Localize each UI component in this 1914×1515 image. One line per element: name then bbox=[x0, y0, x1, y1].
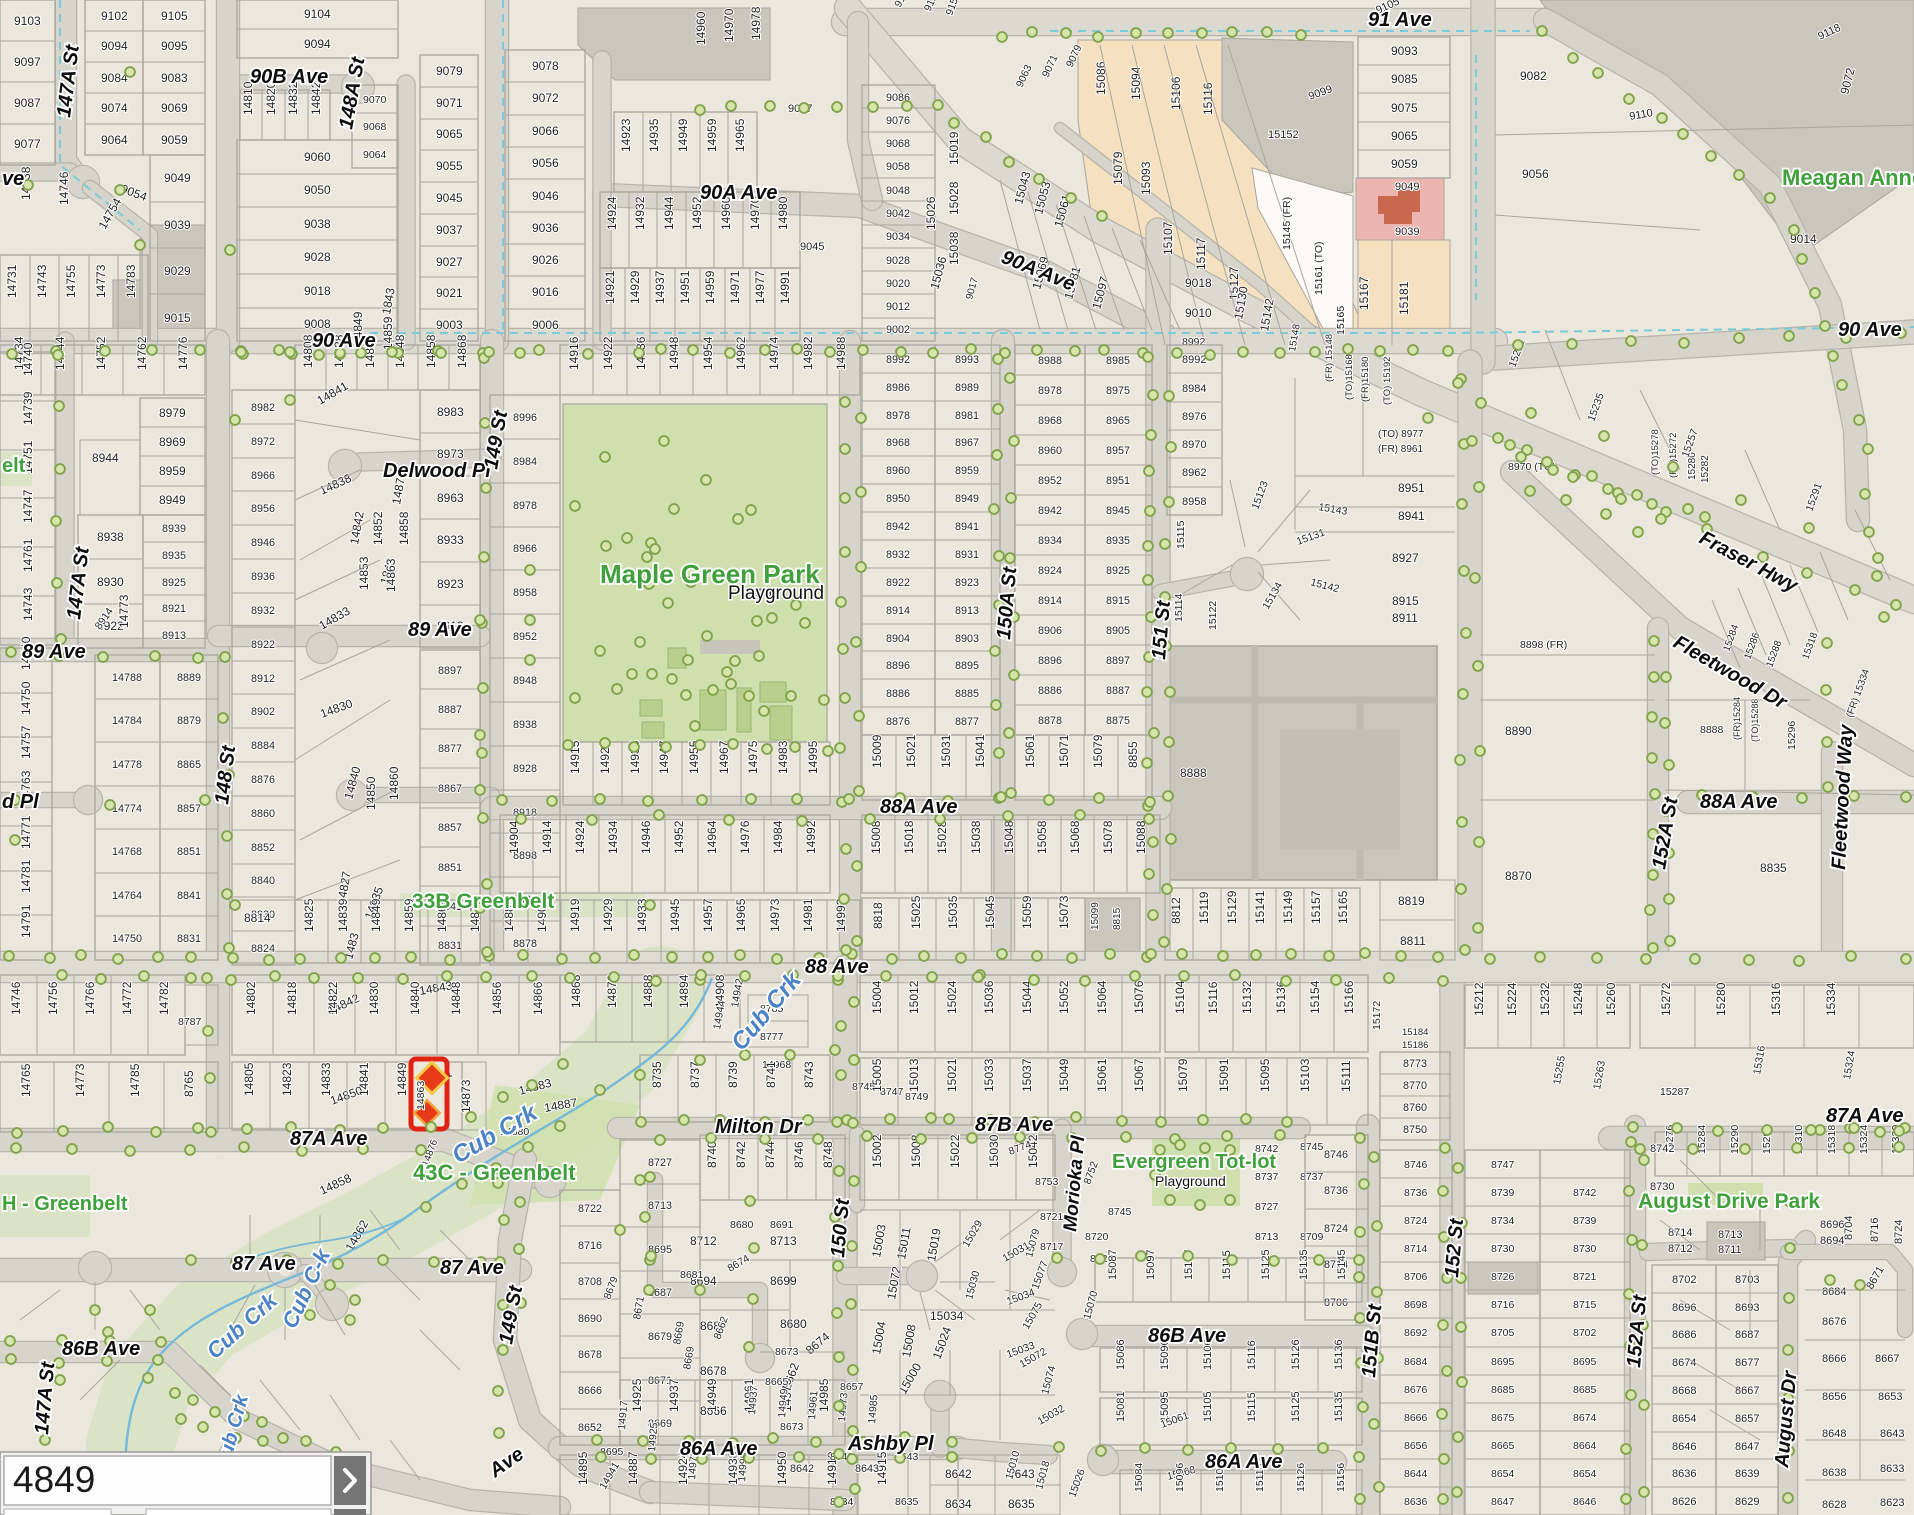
svg-text:8877: 8877 bbox=[955, 716, 979, 728]
svg-text:8928: 8928 bbox=[513, 763, 537, 775]
svg-text:15165: 15165 bbox=[1336, 890, 1350, 924]
svg-text:8709: 8709 bbox=[1300, 1231, 1324, 1243]
svg-text:8914: 8914 bbox=[1038, 595, 1062, 607]
svg-text:14895: 14895 bbox=[576, 1451, 590, 1485]
svg-text:15028: 15028 bbox=[947, 181, 961, 215]
svg-text:8653: 8653 bbox=[1878, 1391, 1902, 1403]
svg-text:8915: 8915 bbox=[1392, 594, 1419, 608]
svg-text:15012: 15012 bbox=[907, 980, 921, 1014]
svg-text:14778: 14778 bbox=[112, 759, 142, 771]
svg-text:14937: 14937 bbox=[746, 1385, 761, 1415]
svg-text:8898 (FR): 8898 (FR) bbox=[1520, 639, 1567, 651]
svg-text:15115: 15115 bbox=[1175, 520, 1187, 549]
svg-text:8703: 8703 bbox=[1735, 1274, 1759, 1286]
svg-text:8925: 8925 bbox=[1106, 565, 1130, 577]
svg-text:8739: 8739 bbox=[726, 1061, 740, 1088]
svg-text:15181: 15181 bbox=[1397, 281, 1411, 315]
svg-text:14762: 14762 bbox=[135, 336, 149, 370]
svg-text:8972: 8972 bbox=[251, 436, 275, 448]
svg-text:9028: 9028 bbox=[886, 255, 910, 267]
svg-text:8876: 8876 bbox=[251, 774, 275, 786]
svg-text:15079: 15079 bbox=[1091, 734, 1105, 768]
svg-text:15116: 15116 bbox=[1246, 1340, 1258, 1370]
svg-text:9018: 9018 bbox=[1185, 276, 1212, 290]
svg-text:14951: 14951 bbox=[678, 270, 692, 304]
svg-text:8665: 8665 bbox=[765, 1376, 789, 1388]
svg-text:9059: 9059 bbox=[1391, 157, 1418, 171]
svg-text:8851: 8851 bbox=[177, 846, 201, 858]
svg-text:8744: 8744 bbox=[763, 1141, 777, 1168]
svg-text:14747: 14747 bbox=[21, 489, 35, 523]
svg-text:8960: 8960 bbox=[886, 465, 910, 477]
svg-text:14957: 14957 bbox=[701, 898, 715, 932]
svg-text:14849: 14849 bbox=[369, 898, 383, 932]
svg-text:15071: 15071 bbox=[1057, 734, 1071, 768]
svg-text:15166: 15166 bbox=[1342, 980, 1356, 1014]
svg-text:8857: 8857 bbox=[177, 803, 201, 815]
svg-text:14746: 14746 bbox=[57, 171, 71, 205]
svg-text:14985: 14985 bbox=[866, 1394, 881, 1424]
svg-text:8642: 8642 bbox=[945, 1467, 972, 1481]
svg-text:8921: 8921 bbox=[162, 603, 186, 615]
svg-text:14852: 14852 bbox=[371, 511, 385, 545]
svg-text:15025: 15025 bbox=[909, 895, 923, 929]
svg-text:15019: 15019 bbox=[947, 131, 961, 165]
svg-text:9065: 9065 bbox=[436, 127, 463, 141]
svg-text:15105: 15105 bbox=[1202, 1391, 1214, 1422]
svg-text:14785: 14785 bbox=[128, 1063, 142, 1097]
svg-text:15115: 15115 bbox=[1246, 1392, 1258, 1422]
svg-text:14791: 14791 bbox=[19, 904, 33, 938]
svg-text:8890: 8890 bbox=[1505, 724, 1532, 738]
svg-text:14975: 14975 bbox=[746, 740, 760, 774]
svg-text:8936: 8936 bbox=[251, 571, 275, 583]
svg-text:8948: 8948 bbox=[513, 675, 537, 687]
svg-text:8692: 8692 bbox=[1404, 1327, 1428, 1339]
svg-text:8736: 8736 bbox=[1404, 1187, 1428, 1199]
svg-text:8680: 8680 bbox=[730, 1219, 754, 1231]
svg-text:15145: 15145 bbox=[1336, 1249, 1348, 1280]
svg-text:15038: 15038 bbox=[969, 820, 983, 854]
svg-text:15086: 15086 bbox=[1115, 1339, 1127, 1370]
svg-text:14924: 14924 bbox=[573, 820, 587, 854]
svg-text:8841: 8841 bbox=[177, 890, 201, 902]
svg-text:8656: 8656 bbox=[1404, 1440, 1428, 1452]
svg-text:15061: 15061 bbox=[1095, 1058, 1109, 1092]
svg-text:15135: 15135 bbox=[1298, 1249, 1310, 1280]
svg-text:9095: 9095 bbox=[161, 39, 188, 53]
svg-text:8740: 8740 bbox=[705, 1141, 719, 1168]
svg-text:86A Ave: 86A Ave bbox=[1205, 1451, 1282, 1473]
svg-text:8745: 8745 bbox=[1300, 1141, 1324, 1153]
svg-text:15106: 15106 bbox=[1169, 76, 1183, 110]
svg-text:14833: 14833 bbox=[319, 1062, 333, 1096]
svg-text:8927: 8927 bbox=[1392, 551, 1419, 565]
svg-text:15260: 15260 bbox=[1604, 982, 1618, 1016]
svg-text:14949: 14949 bbox=[705, 1378, 719, 1412]
svg-text:8711: 8711 bbox=[1718, 1244, 1742, 1256]
svg-text:15024: 15024 bbox=[945, 980, 959, 1014]
svg-text:8895: 8895 bbox=[955, 660, 979, 672]
svg-text:14750: 14750 bbox=[19, 681, 33, 715]
svg-text:15036: 15036 bbox=[982, 980, 996, 1014]
svg-text:8736: 8736 bbox=[1324, 1185, 1348, 1197]
svg-text:14830: 14830 bbox=[367, 981, 381, 1015]
svg-text:15018: 15018 bbox=[902, 820, 916, 854]
svg-text:8695: 8695 bbox=[1573, 1356, 1597, 1368]
svg-text:8742: 8742 bbox=[1650, 1143, 1674, 1155]
svg-text:14952: 14952 bbox=[672, 820, 686, 854]
svg-text:8922: 8922 bbox=[886, 577, 910, 589]
svg-text:8742: 8742 bbox=[734, 1141, 748, 1168]
svg-text:8634: 8634 bbox=[945, 1497, 972, 1511]
svg-text:15097: 15097 bbox=[1145, 1249, 1157, 1280]
svg-text:8951: 8951 bbox=[1398, 481, 1425, 495]
svg-text:8676: 8676 bbox=[1404, 1384, 1428, 1396]
svg-text:8642: 8642 bbox=[790, 1463, 814, 1475]
svg-text:9002: 9002 bbox=[886, 324, 910, 336]
svg-text:8840: 8840 bbox=[251, 875, 275, 887]
svg-text:8951: 8951 bbox=[1106, 475, 1130, 487]
svg-text:14923: 14923 bbox=[619, 118, 633, 152]
svg-text:14937: 14937 bbox=[653, 270, 667, 304]
svg-text:15126: 15126 bbox=[1295, 1463, 1307, 1492]
svg-text:8938: 8938 bbox=[513, 719, 537, 731]
svg-text:86A Ave: 86A Ave bbox=[680, 1438, 757, 1460]
svg-text:15009: 15009 bbox=[870, 734, 884, 768]
svg-text:elt: elt bbox=[2, 455, 26, 477]
svg-text:8739: 8739 bbox=[1491, 1187, 1515, 1199]
svg-text:15068: 15068 bbox=[1068, 820, 1082, 854]
svg-text:8721: 8721 bbox=[1573, 1271, 1597, 1283]
svg-text:15093: 15093 bbox=[1139, 161, 1153, 195]
svg-text:15280: 15280 bbox=[1714, 982, 1728, 1016]
svg-text:9079: 9079 bbox=[436, 64, 463, 78]
svg-text:8867: 8867 bbox=[438, 783, 462, 795]
svg-text:(TO) 15192: (TO) 15192 bbox=[1382, 357, 1393, 405]
svg-text:8979: 8979 bbox=[159, 406, 186, 420]
svg-text:8973: 8973 bbox=[437, 447, 464, 461]
svg-text:8932: 8932 bbox=[886, 549, 910, 561]
svg-text:15045: 15045 bbox=[983, 895, 997, 929]
svg-text:14950: 14950 bbox=[775, 1451, 789, 1485]
svg-text:14768: 14768 bbox=[112, 846, 142, 858]
svg-text:8933: 8933 bbox=[437, 533, 464, 547]
svg-text:14961: 14961 bbox=[806, 1390, 821, 1420]
svg-text:15022: 15022 bbox=[948, 1134, 962, 1168]
svg-text:15078: 15078 bbox=[1101, 820, 1115, 854]
svg-text:8636: 8636 bbox=[1404, 1496, 1428, 1508]
svg-text:15034: 15034 bbox=[930, 1309, 964, 1323]
svg-text:9082: 9082 bbox=[1520, 69, 1547, 83]
svg-text:8716: 8716 bbox=[1491, 1299, 1515, 1311]
svg-text:15005: 15005 bbox=[870, 1058, 884, 1092]
svg-text:15064: 15064 bbox=[1095, 980, 1109, 1014]
svg-text:15132: 15132 bbox=[1240, 980, 1254, 1014]
svg-text:15081: 15081 bbox=[1115, 1391, 1127, 1422]
svg-text:8713: 8713 bbox=[1718, 1229, 1742, 1241]
svg-text:8747: 8747 bbox=[1491, 1159, 1515, 1171]
svg-text:8713: 8713 bbox=[770, 1234, 797, 1248]
svg-text:14894: 14894 bbox=[677, 974, 691, 1008]
svg-text:87A Ave: 87A Ave bbox=[290, 1128, 367, 1150]
svg-text:9071: 9071 bbox=[436, 96, 463, 110]
svg-text:8724: 8724 bbox=[1404, 1215, 1428, 1227]
svg-text:8884: 8884 bbox=[251, 740, 275, 752]
svg-text:14984: 14984 bbox=[771, 820, 785, 854]
svg-text:14981: 14981 bbox=[801, 898, 815, 932]
svg-text:8667: 8667 bbox=[1735, 1385, 1759, 1397]
svg-text:8924: 8924 bbox=[1038, 565, 1062, 577]
svg-text:14948: 14948 bbox=[667, 336, 681, 370]
svg-text:14922: 14922 bbox=[601, 336, 615, 370]
svg-text:8963: 8963 bbox=[437, 491, 464, 505]
svg-text:8722: 8722 bbox=[578, 1203, 602, 1215]
svg-text:14746: 14746 bbox=[9, 981, 23, 1015]
svg-text:8698: 8698 bbox=[1404, 1299, 1428, 1311]
svg-text:15004: 15004 bbox=[870, 980, 884, 1014]
svg-text:15141: 15141 bbox=[1253, 890, 1267, 924]
svg-text:43C - Greenbelt: 43C - Greenbelt bbox=[413, 1160, 576, 1185]
svg-text:14856: 14856 bbox=[490, 981, 504, 1015]
svg-text:14802: 14802 bbox=[244, 981, 258, 1015]
svg-text:8730: 8730 bbox=[1491, 1243, 1515, 1255]
svg-text:8694: 8694 bbox=[1820, 1235, 1844, 1247]
svg-text:8913: 8913 bbox=[162, 630, 186, 642]
svg-text:15172: 15172 bbox=[1371, 1001, 1383, 1030]
svg-text:8902: 8902 bbox=[251, 706, 275, 718]
svg-text:15316: 15316 bbox=[1769, 982, 1783, 1016]
svg-text:8713: 8713 bbox=[648, 1200, 672, 1212]
svg-text:8666: 8666 bbox=[1822, 1353, 1846, 1365]
svg-text:9094: 9094 bbox=[101, 39, 128, 53]
svg-text:8773: 8773 bbox=[1403, 1058, 1427, 1070]
svg-text:9029: 9029 bbox=[164, 264, 191, 278]
svg-text:8684: 8684 bbox=[1822, 1286, 1846, 1298]
svg-text:8643: 8643 bbox=[855, 1463, 879, 1475]
svg-text:8962: 8962 bbox=[1182, 467, 1206, 479]
svg-text:14925: 14925 bbox=[646, 1422, 661, 1452]
svg-text:9046: 9046 bbox=[532, 189, 559, 203]
svg-text:87A Ave: 87A Ave bbox=[1826, 1105, 1903, 1127]
svg-text:15037: 15037 bbox=[1020, 1058, 1034, 1092]
svg-text:14971: 14971 bbox=[728, 270, 742, 304]
svg-text:9072: 9072 bbox=[532, 91, 559, 105]
svg-text:9064: 9064 bbox=[101, 133, 128, 147]
svg-text:8915: 8915 bbox=[1106, 595, 1130, 607]
svg-text:8986: 8986 bbox=[886, 382, 910, 394]
svg-text:90B Ave: 90B Ave bbox=[250, 66, 328, 88]
svg-text:ve: ve bbox=[2, 168, 24, 190]
svg-text:8992: 8992 bbox=[1182, 336, 1206, 348]
svg-text:8760: 8760 bbox=[1403, 1102, 1427, 1114]
svg-text:8742: 8742 bbox=[1573, 1187, 1597, 1199]
svg-text:8983: 8983 bbox=[437, 405, 464, 419]
svg-text:9087: 9087 bbox=[14, 96, 41, 110]
svg-text:14904: 14904 bbox=[507, 820, 521, 854]
svg-text:8818: 8818 bbox=[871, 902, 885, 929]
svg-text:15041: 15041 bbox=[973, 734, 987, 768]
svg-text:14773: 14773 bbox=[117, 594, 131, 628]
svg-text:8746: 8746 bbox=[1324, 1149, 1348, 1161]
svg-text:8730: 8730 bbox=[1573, 1243, 1597, 1255]
svg-text:8888: 8888 bbox=[1700, 724, 1724, 736]
svg-text:8976: 8976 bbox=[1182, 411, 1206, 423]
svg-text:14739: 14739 bbox=[21, 391, 35, 425]
svg-text:8674: 8674 bbox=[1672, 1357, 1696, 1369]
svg-text:8887: 8887 bbox=[1106, 685, 1130, 697]
svg-text:8690: 8690 bbox=[578, 1313, 602, 1325]
svg-text:9026: 9026 bbox=[532, 253, 559, 267]
svg-text:8959: 8959 bbox=[159, 464, 186, 478]
svg-text:8852: 8852 bbox=[251, 842, 275, 854]
svg-text:8912: 8912 bbox=[251, 673, 275, 685]
svg-text:14743: 14743 bbox=[21, 587, 35, 621]
svg-text:8860: 8860 bbox=[251, 808, 275, 820]
svg-text:H - Greenbelt: H - Greenbelt bbox=[2, 1193, 128, 1215]
svg-text:8712: 8712 bbox=[1668, 1243, 1692, 1255]
svg-text:15021: 15021 bbox=[904, 734, 918, 768]
svg-text:Delwood Pl: Delwood Pl bbox=[383, 460, 491, 482]
svg-text:14750: 14750 bbox=[112, 933, 142, 945]
svg-text:14773: 14773 bbox=[73, 1063, 87, 1097]
svg-text:8878: 8878 bbox=[513, 938, 537, 950]
svg-text:15061: 15061 bbox=[1023, 734, 1037, 768]
svg-text:15232: 15232 bbox=[1538, 982, 1552, 1016]
svg-text:8681: 8681 bbox=[680, 1269, 704, 1281]
svg-text:Meagan Anne: Meagan Anne bbox=[1782, 165, 1914, 190]
svg-text:14914: 14914 bbox=[540, 820, 554, 854]
svg-text:8949: 8949 bbox=[159, 493, 186, 507]
svg-text:8726: 8726 bbox=[1491, 1271, 1515, 1283]
svg-text:8903: 8903 bbox=[955, 633, 979, 645]
svg-text:14946: 14946 bbox=[639, 820, 653, 854]
svg-text:8693: 8693 bbox=[1735, 1302, 1759, 1314]
svg-text:15111: 15111 bbox=[1339, 1060, 1353, 1092]
svg-text:15165: 15165 bbox=[1335, 306, 1347, 335]
svg-text:9045: 9045 bbox=[436, 191, 463, 205]
svg-text:8647: 8647 bbox=[1735, 1441, 1759, 1453]
svg-text:8677: 8677 bbox=[1735, 1357, 1759, 1369]
svg-text:9028: 9028 bbox=[304, 250, 331, 264]
svg-text:14868: 14868 bbox=[455, 334, 469, 368]
svg-text:15318: 15318 bbox=[1826, 1125, 1838, 1154]
svg-text:8686: 8686 bbox=[1672, 1329, 1696, 1341]
svg-text:14929: 14929 bbox=[601, 898, 615, 932]
svg-text:14731: 14731 bbox=[5, 264, 19, 298]
svg-text:14973: 14973 bbox=[768, 898, 782, 932]
svg-text:8656: 8656 bbox=[1822, 1391, 1846, 1403]
svg-text:8765: 8765 bbox=[182, 1070, 196, 1097]
svg-text:14756: 14756 bbox=[46, 981, 60, 1015]
svg-text:8888: 8888 bbox=[1180, 766, 1207, 780]
svg-text:8931: 8931 bbox=[955, 549, 979, 561]
svg-text:14825: 14825 bbox=[302, 898, 316, 932]
svg-text:14860: 14860 bbox=[387, 766, 401, 800]
svg-text:8713: 8713 bbox=[1255, 1231, 1279, 1243]
svg-text:9037: 9037 bbox=[436, 223, 463, 237]
svg-text:8680: 8680 bbox=[780, 1317, 807, 1331]
svg-text:15184: 15184 bbox=[1402, 1027, 1428, 1038]
svg-text:9038: 9038 bbox=[304, 217, 331, 231]
svg-text:14859: 14859 bbox=[381, 316, 395, 350]
svg-text:4849: 4849 bbox=[13, 1459, 95, 1500]
svg-text:15021: 15021 bbox=[945, 1058, 959, 1092]
svg-text:8648: 8648 bbox=[1822, 1428, 1846, 1440]
svg-text:14970: 14970 bbox=[722, 8, 736, 42]
svg-text:8932: 8932 bbox=[251, 605, 275, 617]
svg-text:15129: 15129 bbox=[1225, 890, 1239, 924]
svg-text:14781: 14781 bbox=[19, 859, 33, 893]
svg-text:9021: 9021 bbox=[436, 286, 463, 300]
svg-text:8941: 8941 bbox=[955, 521, 979, 533]
svg-text:8941: 8941 bbox=[1398, 509, 1425, 523]
svg-text:15114: 15114 bbox=[1173, 593, 1185, 622]
svg-text:14771: 14771 bbox=[19, 815, 33, 849]
svg-text:15161 (TO): 15161 (TO) bbox=[1313, 242, 1325, 296]
svg-text:14932: 14932 bbox=[633, 196, 647, 230]
svg-text:August Drive Park: August Drive Park bbox=[1638, 1190, 1820, 1213]
svg-text:8875: 8875 bbox=[1106, 715, 1130, 727]
svg-text:8664: 8664 bbox=[1573, 1440, 1597, 1452]
svg-text:15167: 15167 bbox=[1357, 276, 1371, 310]
svg-text:8935: 8935 bbox=[1106, 535, 1130, 547]
svg-text:8975: 8975 bbox=[1106, 385, 1130, 397]
svg-text:8851: 8851 bbox=[438, 862, 462, 874]
svg-text:8679: 8679 bbox=[648, 1331, 672, 1343]
svg-text:8865: 8865 bbox=[177, 759, 201, 771]
svg-text:8957: 8957 bbox=[1106, 445, 1130, 457]
svg-text:8952: 8952 bbox=[513, 631, 537, 643]
svg-text:14743: 14743 bbox=[35, 264, 49, 298]
svg-text:8958: 8958 bbox=[513, 587, 537, 599]
svg-text:14965: 14965 bbox=[734, 898, 748, 932]
svg-text:8978: 8978 bbox=[886, 410, 910, 422]
svg-text:15145 (FR): 15145 (FR) bbox=[1281, 197, 1293, 250]
svg-text:90A Ave: 90A Ave bbox=[700, 182, 777, 204]
svg-text:14924: 14924 bbox=[605, 196, 619, 230]
svg-text:15334: 15334 bbox=[1824, 982, 1838, 1016]
svg-text:8753: 8753 bbox=[1035, 1176, 1059, 1188]
svg-text:8879: 8879 bbox=[177, 715, 201, 727]
svg-text:8629: 8629 bbox=[1735, 1496, 1759, 1508]
svg-text:9060: 9060 bbox=[304, 150, 331, 164]
svg-text:8741: 8741 bbox=[764, 1061, 778, 1088]
svg-text:8739: 8739 bbox=[1573, 1215, 1597, 1227]
svg-text:8654: 8654 bbox=[1573, 1468, 1597, 1480]
svg-text:15084: 15084 bbox=[1133, 1463, 1145, 1492]
svg-text:15088: 15088 bbox=[1134, 820, 1148, 854]
svg-text:15086: 15086 bbox=[1094, 61, 1108, 95]
svg-text:8674: 8674 bbox=[1573, 1412, 1597, 1424]
svg-text:15287: 15287 bbox=[1660, 1086, 1689, 1098]
svg-text:8623: 8623 bbox=[1880, 1497, 1904, 1509]
svg-text:8811: 8811 bbox=[1400, 934, 1426, 948]
svg-text:14772: 14772 bbox=[120, 981, 134, 1015]
svg-text:15008: 15008 bbox=[869, 820, 883, 854]
svg-text:14980: 14980 bbox=[776, 196, 790, 230]
svg-text:14818: 14818 bbox=[285, 981, 299, 1015]
svg-text:9048: 9048 bbox=[886, 185, 910, 197]
svg-text:8654: 8654 bbox=[1491, 1468, 1515, 1480]
svg-text:8985: 8985 bbox=[1106, 355, 1130, 367]
svg-text:15154: 15154 bbox=[1308, 980, 1322, 1014]
svg-text:14863: 14863 bbox=[384, 558, 398, 592]
svg-text:8984: 8984 bbox=[513, 456, 537, 468]
svg-text:14995: 14995 bbox=[806, 740, 820, 774]
svg-text:8855: 8855 bbox=[1126, 741, 1140, 768]
svg-text:14960: 14960 bbox=[694, 11, 708, 45]
